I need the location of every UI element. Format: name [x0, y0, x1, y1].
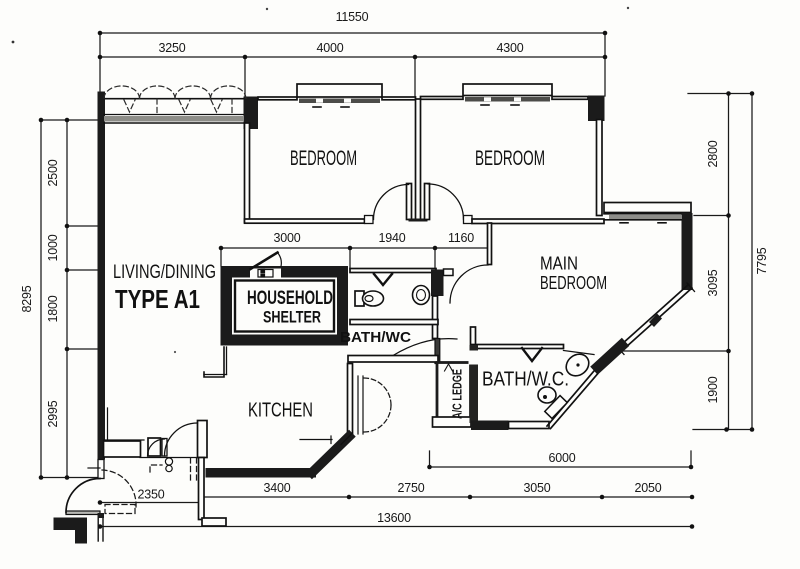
svg-text:2995: 2995 — [46, 400, 60, 427]
svg-text:3050: 3050 — [523, 481, 550, 495]
svg-text:HOUSEHOLD: HOUSEHOLD — [247, 288, 333, 309]
svg-text:2750: 2750 — [397, 481, 424, 495]
svg-text:3000: 3000 — [273, 231, 300, 245]
svg-text:2350: 2350 — [137, 488, 164, 502]
svg-text:1900: 1900 — [706, 376, 720, 403]
svg-text:7795: 7795 — [755, 247, 769, 274]
svg-text:TYPE A1: TYPE A1 — [115, 284, 200, 314]
svg-text:3250: 3250 — [158, 41, 185, 55]
svg-text:11550: 11550 — [336, 10, 369, 24]
svg-text:2050: 2050 — [634, 481, 661, 495]
svg-text:BATH/W.C.: BATH/W.C. — [482, 369, 569, 391]
svg-text:MAIN: MAIN — [540, 254, 578, 274]
svg-text:BATH/WC: BATH/WC — [340, 329, 411, 346]
svg-text:1800: 1800 — [46, 295, 60, 322]
svg-text:2500: 2500 — [46, 159, 60, 186]
svg-text:3095: 3095 — [706, 269, 720, 296]
svg-text:8295: 8295 — [20, 285, 34, 312]
svg-text:SHELTER: SHELTER — [263, 308, 321, 327]
svg-text:BEDROOM: BEDROOM — [290, 147, 357, 170]
svg-text:1000: 1000 — [46, 234, 60, 261]
svg-text:2800: 2800 — [706, 140, 720, 167]
svg-text:6000: 6000 — [548, 451, 575, 465]
svg-text:LIVING/DINING: LIVING/DINING — [113, 262, 216, 283]
svg-text:BEDROOM: BEDROOM — [475, 147, 545, 170]
svg-text:3400: 3400 — [263, 481, 290, 495]
svg-text:4000: 4000 — [316, 41, 343, 55]
svg-text:13600: 13600 — [377, 511, 411, 525]
svg-text:KITCHEN: KITCHEN — [248, 400, 313, 422]
svg-text:1160: 1160 — [448, 231, 474, 245]
svg-text:BEDROOM: BEDROOM — [540, 273, 607, 293]
svg-text:4300: 4300 — [496, 41, 523, 55]
svg-text:1940: 1940 — [378, 231, 405, 245]
svg-text:A/C LEDGE: A/C LEDGE — [451, 369, 465, 419]
